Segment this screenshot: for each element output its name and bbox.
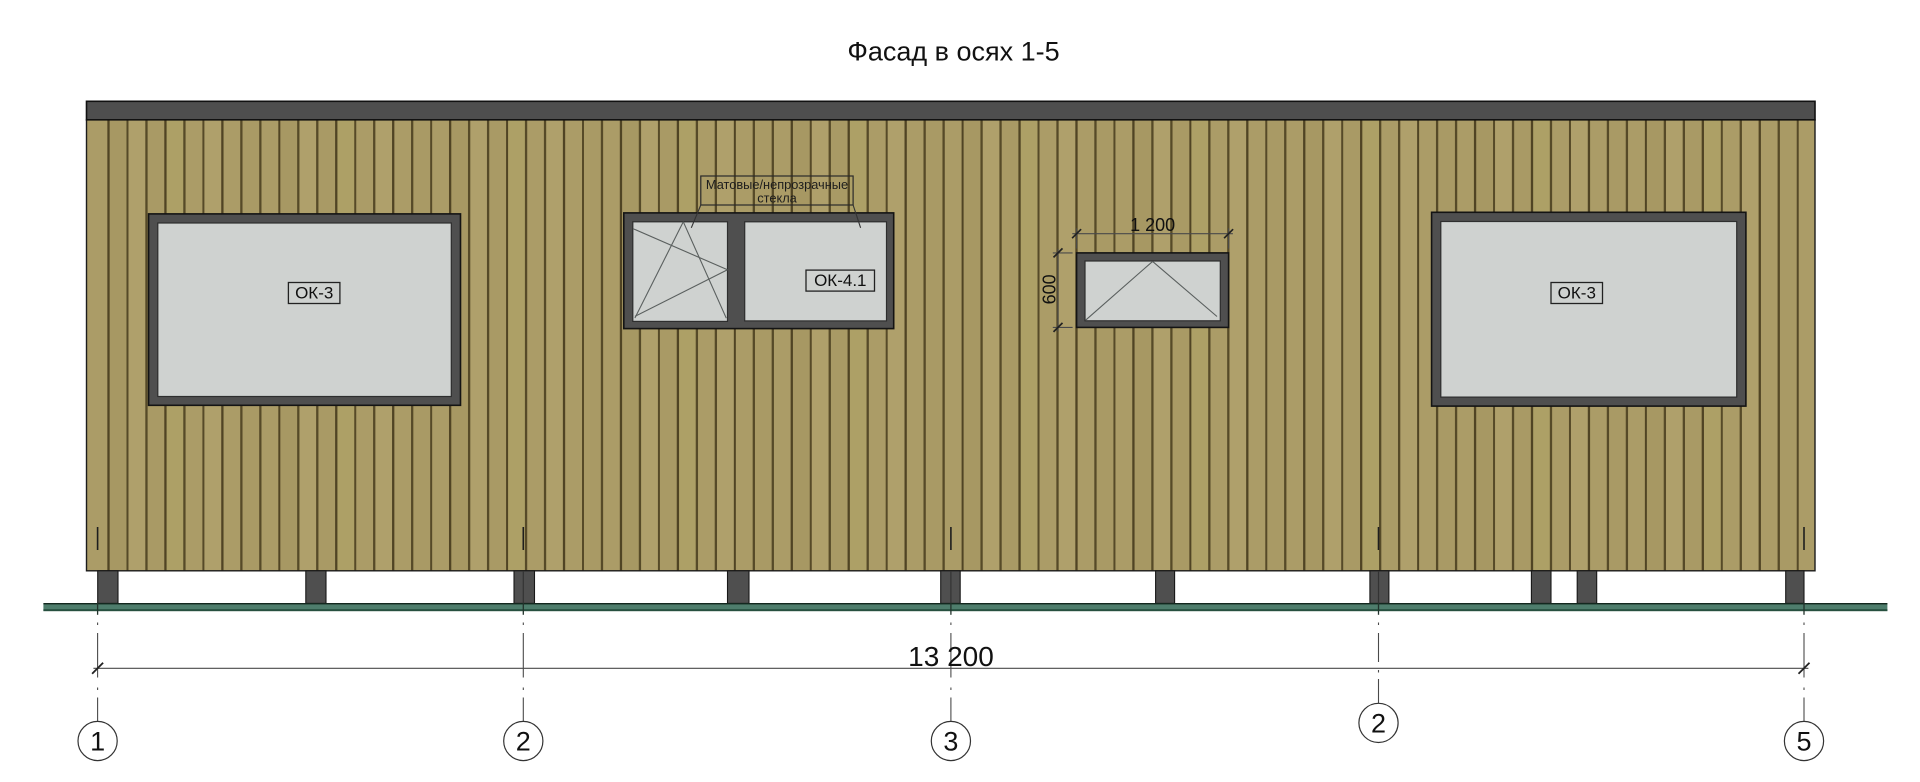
svg-text:ОК-3: ОК-3 — [1558, 283, 1596, 302]
svg-text:ОК-4.1: ОК-4.1 — [814, 271, 866, 290]
svg-text:2: 2 — [516, 727, 531, 757]
svg-text:2: 2 — [1371, 709, 1386, 739]
svg-text:3: 3 — [943, 727, 958, 757]
svg-text:стекла: стекла — [757, 190, 797, 205]
svg-text:ОК-3: ОК-3 — [295, 283, 333, 302]
svg-text:600: 600 — [1040, 274, 1060, 304]
svg-text:1: 1 — [90, 727, 105, 757]
svg-text:5: 5 — [1796, 727, 1811, 757]
svg-text:1 200: 1 200 — [1130, 215, 1175, 235]
svg-text:13 200: 13 200 — [908, 641, 994, 672]
svg-text:Фасад в осях 1-5: Фасад в осях 1-5 — [847, 37, 1059, 67]
